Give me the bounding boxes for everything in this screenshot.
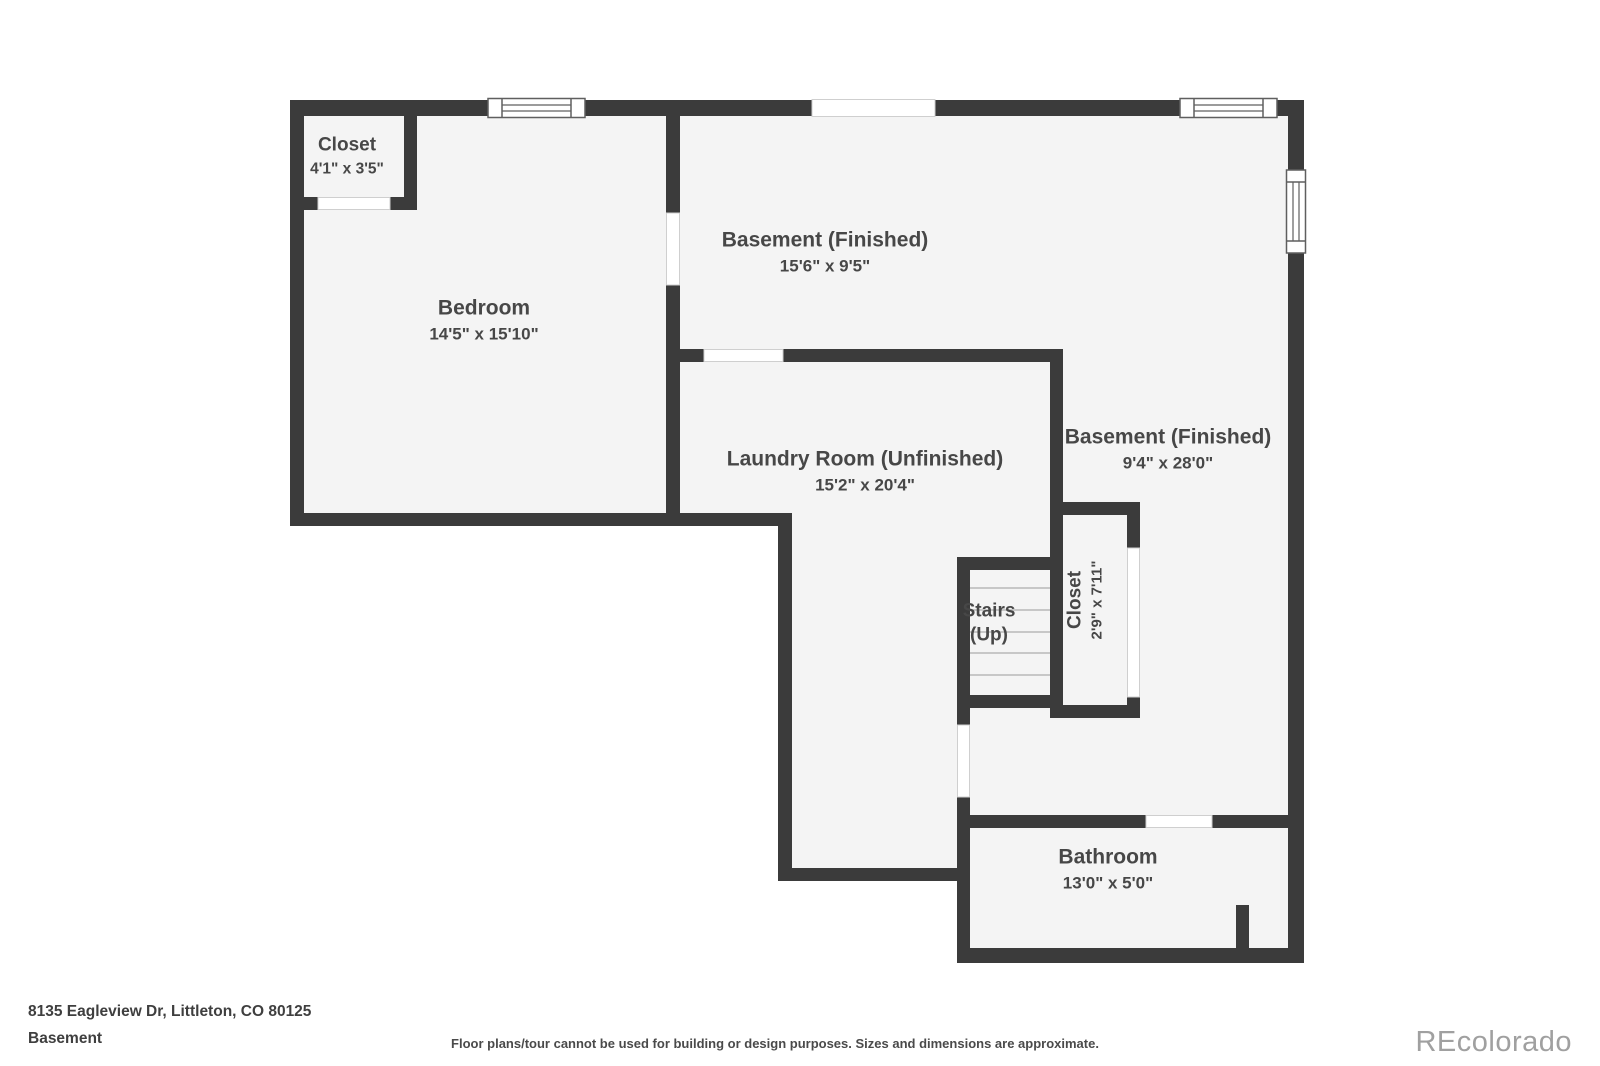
wall-closet-tl-right — [404, 116, 417, 210]
room-name: Bedroom — [429, 295, 538, 321]
footer-disclaimer: Floor plans/tour cannot be used for buil… — [451, 1036, 1099, 1051]
opening-laundry-top — [704, 350, 783, 362]
room-label-closet-by-stairs: Closet 2'9" x 7'11" — [1063, 561, 1107, 640]
room-dims: 15'2" x 20'4" — [727, 475, 1004, 496]
wall-divider-stairs-closet — [1050, 349, 1063, 718]
wall-closet-tl-bottom-2 — [390, 197, 417, 210]
room-name-line2: (Up) — [963, 623, 1016, 647]
door-bedroom — [667, 213, 680, 285]
footer-level: Basement — [28, 1030, 102, 1048]
room-name: Closet — [310, 133, 384, 157]
wall-bathroom-bottom — [957, 948, 1304, 963]
wall-closet-tl-bottom-1 — [290, 197, 318, 210]
wall-top-1 — [290, 100, 488, 116]
wall-stairs-bottom — [957, 695, 1063, 708]
wall-closet-right-upper — [1127, 502, 1140, 548]
room-dims: 15'6" x 9'5" — [722, 256, 929, 277]
wall-bedroom-right-lower — [666, 285, 680, 526]
opening-top-wall — [812, 100, 935, 117]
wall-laundry-top-1 — [666, 349, 704, 362]
room-dims: 2'9" x 7'11" — [1088, 561, 1107, 640]
wall-closet-top — [1050, 502, 1140, 515]
wall-laundry-top-2 — [783, 349, 1063, 362]
wall-top-2 — [585, 100, 812, 116]
footer-address: 8135 Eagleview Dr, Littleton, CO 80125 — [28, 1003, 311, 1021]
wall-laundry-bottom — [778, 868, 970, 881]
wall-bedroom-right-upper — [666, 116, 680, 213]
wall-bathroom-top-2 — [1212, 815, 1304, 828]
window-top-left — [488, 99, 585, 118]
wall-bathroom-stub — [1236, 905, 1249, 963]
room-label-bedroom: Bedroom 14'5" x 15'10" — [429, 295, 538, 345]
door-laundry-basement — [958, 725, 970, 797]
window-top-right — [1180, 99, 1277, 118]
wall-bedroom-bottom — [290, 513, 792, 526]
wall-laundry-left — [778, 513, 792, 881]
floor-plan-drawing — [0, 0, 1600, 1066]
room-name: Laundry Room (Unfinished) — [727, 446, 1004, 472]
room-name: Closet — [1063, 561, 1087, 640]
room-dims: 4'1" x 3'5" — [310, 159, 384, 178]
room-dims: 14'5" x 15'10" — [429, 324, 538, 345]
floor-plan-page: Closet 4'1" x 3'5" Bedroom 14'5" x 15'10… — [0, 0, 1600, 1066]
room-label-basement-top: Basement (Finished) 15'6" x 9'5" — [722, 227, 929, 277]
door-closet-by-stairs — [1128, 548, 1140, 697]
watermark-recolorado: REcolorado — [1415, 1026, 1572, 1059]
room-dims: 13'0" x 5'0" — [1058, 873, 1157, 894]
room-name: Basement (Finished) — [1065, 424, 1272, 450]
room-name: Bathroom — [1058, 844, 1157, 870]
door-closet-tl — [318, 198, 390, 210]
room-name: Basement (Finished) — [722, 227, 929, 253]
wall-right-lower — [1288, 253, 1304, 963]
room-name: Stairs — [963, 599, 1016, 623]
door-bathroom — [1146, 816, 1212, 828]
wall-closet-bottom — [1050, 705, 1140, 718]
wall-stairs-top — [957, 557, 1063, 570]
room-label-laundry: Laundry Room (Unfinished) 15'2" x 20'4" — [727, 446, 1004, 496]
wall-top-3 — [935, 100, 1180, 116]
room-dims: 9'4" x 28'0" — [1065, 453, 1272, 474]
room-label-closet-top-left: Closet 4'1" x 3'5" — [310, 133, 384, 178]
wall-right-upper — [1288, 100, 1304, 170]
room-label-bathroom: Bathroom 13'0" x 5'0" — [1058, 844, 1157, 894]
wall-bathroom-top-1 — [957, 815, 1146, 828]
room-label-basement-right: Basement (Finished) 9'4" x 28'0" — [1065, 424, 1272, 474]
wall-left — [290, 100, 304, 526]
room-label-stairs: Stairs (Up) — [963, 599, 1016, 647]
window-right-wall — [1287, 170, 1306, 253]
floor-laundry-upper — [666, 349, 1063, 526]
